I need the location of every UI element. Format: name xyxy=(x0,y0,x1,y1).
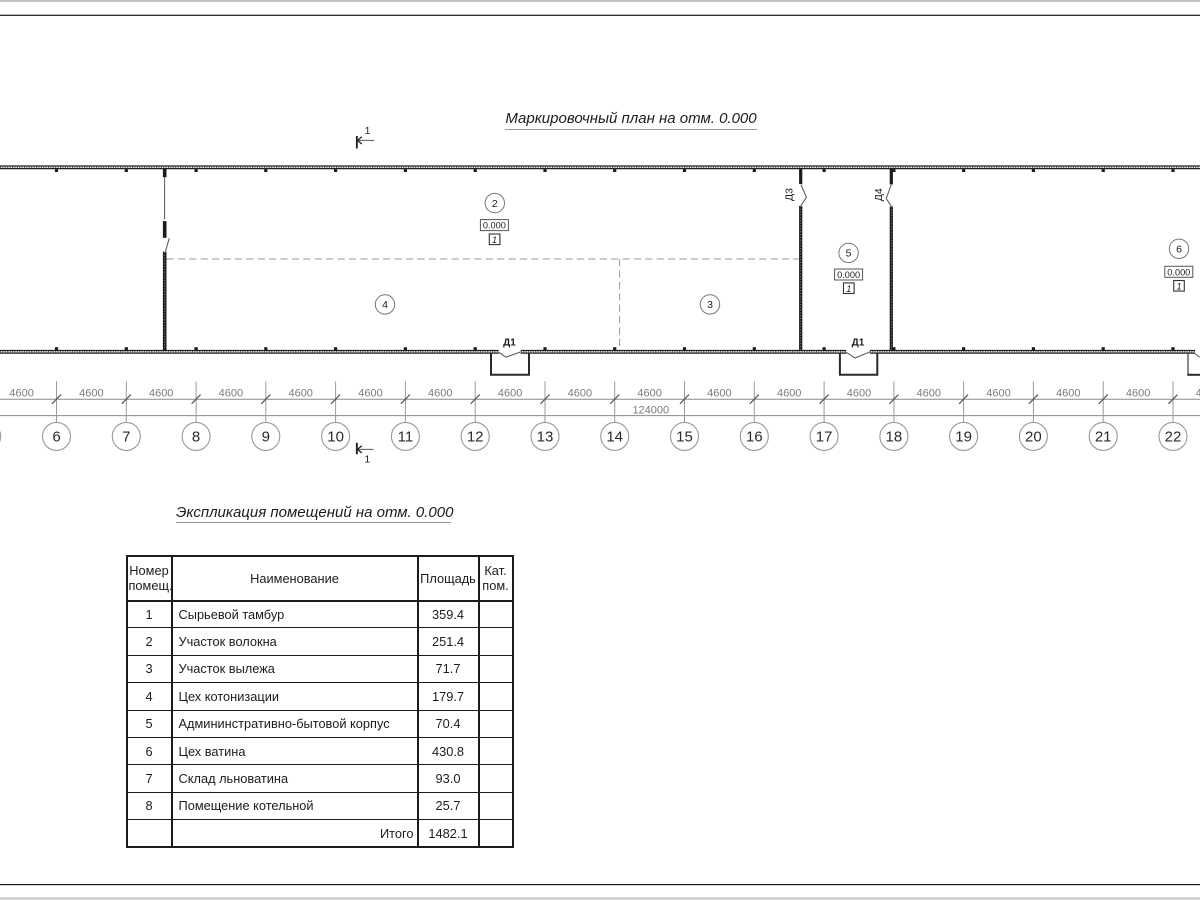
svg-text:4600: 4600 xyxy=(149,387,173,399)
svg-text:0.000: 0.000 xyxy=(1167,267,1190,277)
svg-text:Д1: Д1 xyxy=(852,338,865,349)
svg-text:4600: 4600 xyxy=(707,387,731,399)
svg-text:4: 4 xyxy=(382,299,388,311)
svg-text:1: 1 xyxy=(492,235,497,245)
svg-text:1: 1 xyxy=(1176,281,1181,291)
svg-text:2: 2 xyxy=(492,198,498,210)
svg-text:14: 14 xyxy=(606,429,623,446)
svg-text:22: 22 xyxy=(1165,429,1182,446)
svg-text:0.000: 0.000 xyxy=(483,221,506,231)
svg-text:4600: 4600 xyxy=(358,387,382,399)
svg-text:Д3: Д3 xyxy=(783,188,795,201)
svg-text:19: 19 xyxy=(955,429,972,446)
svg-text:11: 11 xyxy=(398,429,414,446)
svg-text:4600: 4600 xyxy=(1056,387,1080,399)
svg-text:4600: 4600 xyxy=(986,387,1010,399)
svg-text:0.000: 0.000 xyxy=(837,270,860,280)
svg-text:Д1: Д1 xyxy=(503,338,516,349)
svg-text:4600: 4600 xyxy=(637,387,661,399)
svg-text:16: 16 xyxy=(746,429,763,446)
svg-text:1: 1 xyxy=(364,454,370,466)
svg-text:4600: 4600 xyxy=(847,387,871,399)
svg-text:13: 13 xyxy=(537,429,554,446)
svg-text:4600: 4600 xyxy=(288,387,312,399)
svg-text:3: 3 xyxy=(707,299,713,311)
svg-text:4600: 4600 xyxy=(428,387,452,399)
svg-text:4600: 4600 xyxy=(917,387,941,399)
svg-text:4600: 4600 xyxy=(498,387,522,399)
svg-text:21: 21 xyxy=(1095,429,1112,446)
svg-text:8: 8 xyxy=(192,429,200,446)
svg-text:6: 6 xyxy=(52,429,60,446)
svg-text:10: 10 xyxy=(327,429,344,446)
svg-text:4600: 4600 xyxy=(79,387,103,399)
svg-text:17: 17 xyxy=(816,429,833,446)
svg-text:1: 1 xyxy=(846,284,851,294)
svg-text:Д4: Д4 xyxy=(873,188,885,201)
svg-text:4600: 4600 xyxy=(1196,387,1200,399)
svg-text:9: 9 xyxy=(262,429,270,446)
svg-text:18: 18 xyxy=(886,429,903,446)
svg-text:4600: 4600 xyxy=(9,387,33,399)
svg-text:4600: 4600 xyxy=(568,387,592,399)
svg-text:6: 6 xyxy=(1176,244,1182,256)
svg-text:12: 12 xyxy=(467,429,484,446)
svg-text:4600: 4600 xyxy=(219,387,243,399)
svg-text:7: 7 xyxy=(122,429,130,446)
svg-text:15: 15 xyxy=(676,429,693,446)
svg-text:124000: 124000 xyxy=(632,404,669,416)
svg-text:4600: 4600 xyxy=(777,387,801,399)
svg-text:1: 1 xyxy=(365,125,371,137)
svg-text:20: 20 xyxy=(1025,429,1042,446)
svg-text:5: 5 xyxy=(846,248,852,260)
svg-text:4600: 4600 xyxy=(1126,387,1150,399)
